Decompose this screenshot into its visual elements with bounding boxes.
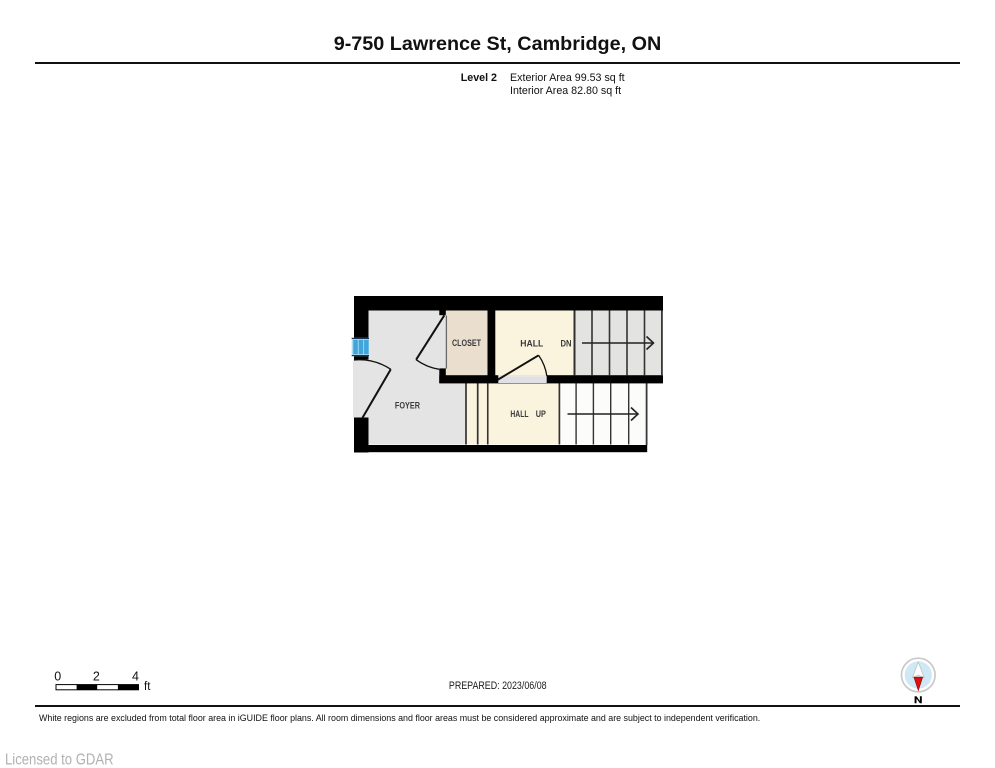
svg-text:2: 2 <box>93 670 100 684</box>
svg-text:ft: ft <box>144 681 151 693</box>
svg-text:UP: UP <box>536 409 546 419</box>
svg-text:HALL: HALL <box>520 338 543 348</box>
svg-text:4: 4 <box>132 670 139 684</box>
svg-text:CLOSET: CLOSET <box>452 338 481 348</box>
svg-text:Licensed to GDAR: Licensed to GDAR <box>5 751 114 768</box>
svg-text:DN: DN <box>561 338 572 348</box>
svg-text:PREPARED: 2023/06/08: PREPARED: 2023/06/08 <box>449 680 547 692</box>
svg-text:FOYER: FOYER <box>395 401 420 411</box>
svg-text:0: 0 <box>54 670 61 684</box>
svg-text:HALL: HALL <box>510 409 528 419</box>
